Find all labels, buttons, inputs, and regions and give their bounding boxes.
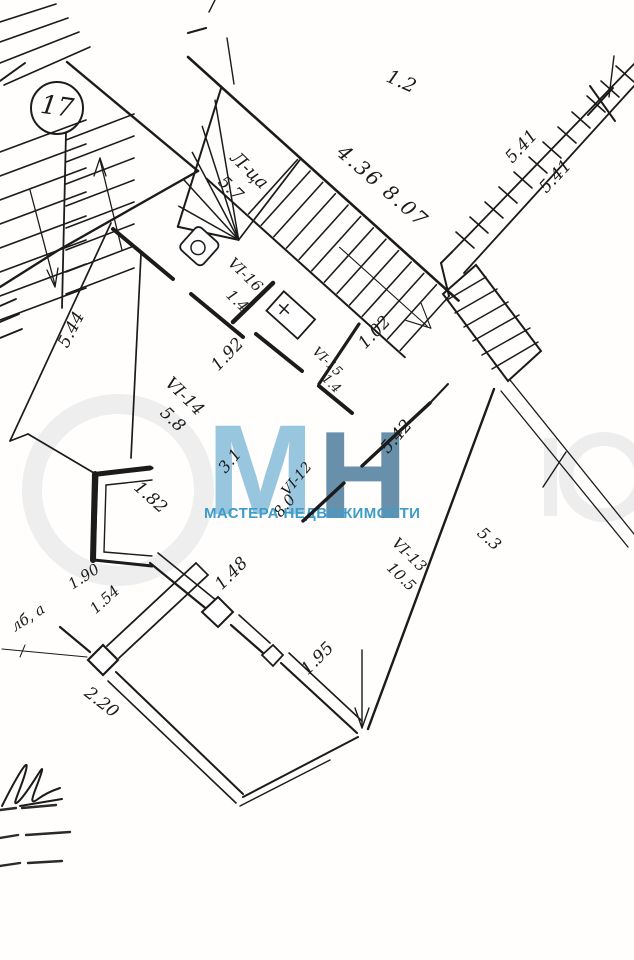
dim-5-44: 5.44 — [56, 309, 88, 350]
dim-1-54: 1.54 — [88, 583, 123, 617]
handwritten-note: лб, а — [8, 602, 47, 635]
dim-1-90: 1.90 — [66, 562, 102, 593]
room-vi16-area: 1.4 — [223, 287, 251, 314]
dim-2-20: 2.20 — [81, 685, 121, 722]
dim-5-3: 5.3 — [474, 525, 504, 554]
room-vi15-area: 1.4 — [319, 372, 343, 396]
plan-labels: 17 Л-ца 5.7 4.36 8.07 1.2 5.41 5.41 5.44… — [0, 0, 634, 960]
dim-5-41-b: 5.41 — [537, 157, 575, 196]
dim-top-wall: 4.36 8.07 — [334, 141, 433, 231]
dim-5-42: 5.42 — [378, 417, 416, 457]
dim-1-95: 1.95 — [299, 640, 338, 679]
dim-1-48: 1.48 — [213, 555, 252, 594]
dim-3-1: 3.1 — [216, 446, 245, 476]
dim-1-82: 1.82 — [130, 479, 170, 517]
floorplan-scan: М Н МАСТЕРА НЕДВИЖИМОСТИ — [0, 0, 634, 960]
dim-1-92: 1.92 — [209, 335, 248, 374]
dim-1-2: 1.2 — [383, 67, 418, 97]
dim-1-02: 1.02 — [356, 313, 395, 352]
room-vi12-area: 8.0 — [272, 492, 299, 520]
stair-room-area: 5.7 — [214, 173, 245, 204]
dim-5-41-a: 5.41 — [503, 127, 541, 166]
unit-badge: 17 — [39, 92, 75, 122]
